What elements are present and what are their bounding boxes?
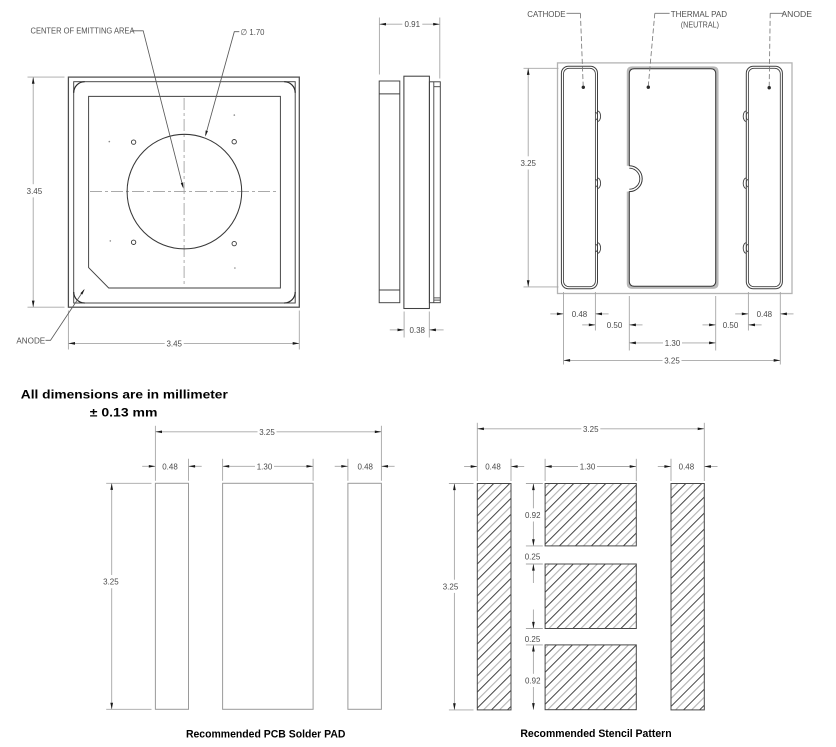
svg-text:0.92: 0.92 (525, 510, 541, 520)
svg-text:0.91: 0.91 (405, 19, 421, 29)
svg-text:(NEUTRAL): (NEUTRAL) (681, 20, 719, 30)
svg-text:1.30: 1.30 (257, 461, 273, 471)
svg-text:± 0.13 mm: ± 0.13 mm (90, 406, 158, 420)
svg-text:3.45: 3.45 (166, 338, 182, 348)
svg-text:ANODE: ANODE (16, 336, 45, 346)
svg-text:3.25: 3.25 (259, 427, 275, 437)
svg-text:CATHODE: CATHODE (527, 9, 565, 19)
svg-text:3.45: 3.45 (27, 186, 43, 196)
svg-text:3.25: 3.25 (443, 581, 459, 591)
svg-text:0.25: 0.25 (525, 551, 541, 561)
svg-text:ANODE: ANODE (781, 9, 812, 19)
svg-text:All dimensions are in millimet: All dimensions are in millimeter (21, 387, 228, 401)
svg-text:Recommended PCB Solder PAD: Recommended PCB Solder PAD (186, 728, 346, 740)
svg-text:THERMAL PAD: THERMAL PAD (671, 9, 727, 19)
svg-text:0.48: 0.48 (679, 462, 695, 472)
svg-text:0.50: 0.50 (723, 320, 739, 330)
svg-text:0.38: 0.38 (409, 325, 425, 335)
svg-text:CENTER OF EMITTING AREA: CENTER OF EMITTING AREA (31, 26, 135, 36)
svg-text:0.50: 0.50 (607, 320, 623, 330)
svg-text:0.25: 0.25 (525, 634, 541, 644)
svg-text:Recommended Stencil Pattern: Recommended Stencil Pattern (520, 728, 671, 740)
svg-text:0.48: 0.48 (357, 461, 373, 471)
svg-text:3.25: 3.25 (664, 355, 680, 365)
svg-text:0.48: 0.48 (162, 461, 178, 471)
svg-text:3.25: 3.25 (520, 158, 536, 168)
svg-text:1.30: 1.30 (580, 462, 596, 472)
svg-text:0.48: 0.48 (485, 462, 501, 472)
svg-text:0.48: 0.48 (757, 309, 773, 319)
svg-text:0.48: 0.48 (572, 309, 588, 319)
svg-text:∅ 1.70: ∅ 1.70 (241, 27, 265, 37)
svg-text:3.25: 3.25 (103, 577, 119, 587)
svg-text:0.92: 0.92 (525, 675, 541, 685)
svg-text:1.30: 1.30 (665, 338, 681, 348)
svg-text:3.25: 3.25 (583, 424, 599, 434)
